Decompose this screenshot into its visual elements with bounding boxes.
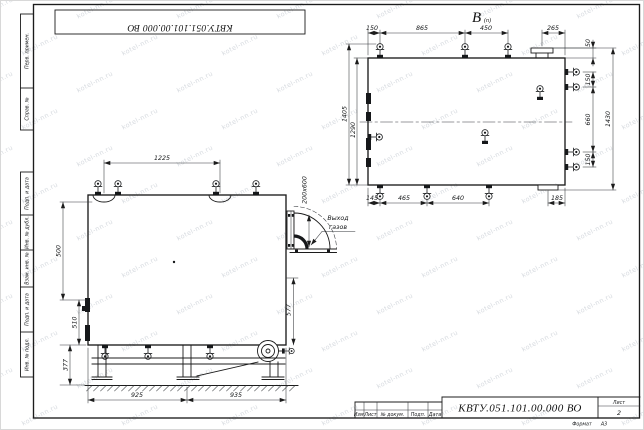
dim-label: 450 [480,25,492,32]
titleblock-sheet-label: Лист [612,400,625,406]
hinge [366,112,371,121]
titleblock-col-data: Дата [428,412,441,418]
dim-label: 200x600 [302,176,309,204]
valve-icon [368,133,382,141]
view-label-main: В [472,10,481,26]
valve-icon [565,83,579,91]
hinge [366,158,371,167]
dim-label: 1430 [605,111,612,127]
hinge [82,306,85,311]
dim-label: 50 [585,39,592,47]
boiler-body-plan [368,58,565,185]
support-frame [92,345,285,380]
dim-label: 510 [72,316,79,328]
view-label: В (п) [472,10,491,26]
valve-icon [536,86,544,100]
dim-label: 265 [547,25,559,32]
valve-icon [144,345,152,359]
dim-label: 500 [56,245,63,257]
margin-cell-label: Взам. инв. № [25,252,31,285]
valve-icon [504,44,512,58]
flange-icon [538,185,558,190]
manhole-hatch [93,195,115,202]
format-value: А3 [600,422,607,428]
dim-label: 865 [416,25,428,32]
valve-icon [481,130,489,144]
dim-label: 935 [230,392,242,399]
dim-label: 145 [366,195,378,202]
gas-outlet-text-1: Выход [327,215,348,222]
valve-icon [114,181,122,195]
dim-label: 465 [398,195,410,202]
valve-icon [565,68,579,76]
stamp-doc-number: КВТУ.051.101.00.000 ВО [127,22,234,32]
title-block: Изм. Лист № докум. Подп. Дата КВТУ.051.1… [354,397,640,428]
ground-line [85,386,298,392]
hinge [366,93,371,104]
plan-view: 150 865 450 265 50 150 660 [342,25,617,206]
margin-cell-label: Перв. примен. [25,33,31,69]
valve-icon [485,185,493,199]
dim-label: 150 [585,153,592,165]
valve-icon [376,44,384,58]
dim-label: 1225 [154,155,170,162]
margin-column: Перв. примен. Справ. № Подп. и дата Инв.… [21,14,34,377]
dim-label: 185 [551,195,563,202]
titleblock-doc-number: КВТУ.051.101.00.000 ВО [457,403,581,415]
top-stamp: КВТУ.051.101.00.000 ВО [55,10,305,34]
valve-icon [206,345,214,359]
valve-icon [461,44,469,58]
dim-label: 377 [63,359,70,371]
door-bolt [173,261,175,263]
valve-icon [565,148,579,156]
dim-label: 925 [131,392,143,399]
gas-outlet-text-2: газов [329,224,347,231]
front-view: Выход газов 1225 500 [56,155,356,403]
format-label: Формат [572,422,592,428]
valve-icon [101,345,109,359]
titleblock-col-podp: Подп. [411,412,426,418]
margin-cell-label: Подп. и дата [25,293,31,326]
margin-cell-label: Инв. № подл. [25,338,31,371]
hinge [85,325,90,341]
dim-label: 150 [366,25,378,32]
titleblock-sheet-number: 2 [617,410,621,417]
valve-icon [252,181,260,195]
valve-icon [423,185,431,199]
flange-icon [531,48,553,58]
view-label-sub: (п) [484,17,491,24]
plan-view-dimensions: 150 865 450 265 50 150 660 [342,25,617,206]
valve-icon [212,181,220,195]
dim-label: 640 [452,195,464,202]
valve-icon [565,163,579,171]
titleblock-col-list: Лист [363,412,376,418]
drawing-canvas: Перв. примен. Справ. № Подп. и дата Инв.… [0,0,644,430]
dim-label: 577 [286,304,293,316]
manhole-hatch [209,195,231,202]
dim-label: 1290 [350,122,357,138]
valve-icon [94,181,102,195]
titleblock-col-doc: № докум. [380,412,405,418]
margin-cell-label: Подп. и дата [25,177,31,210]
sheet-frame [1,1,644,430]
front-view-dimensions: 1225 500 510 377 577 200x600 [56,155,310,403]
boiler-body-front [88,195,286,345]
drawing-sheet: kotel-nn.rukotel-nn.rukotel-nn.rukotel-n… [0,0,644,430]
margin-cell-label: Инв. № дубл. [25,216,31,249]
margin-cell-label: Справ. № [25,97,31,120]
dim-label: 150 [585,73,592,85]
dim-label: 1405 [342,106,349,122]
dim-label: 660 [585,113,592,125]
